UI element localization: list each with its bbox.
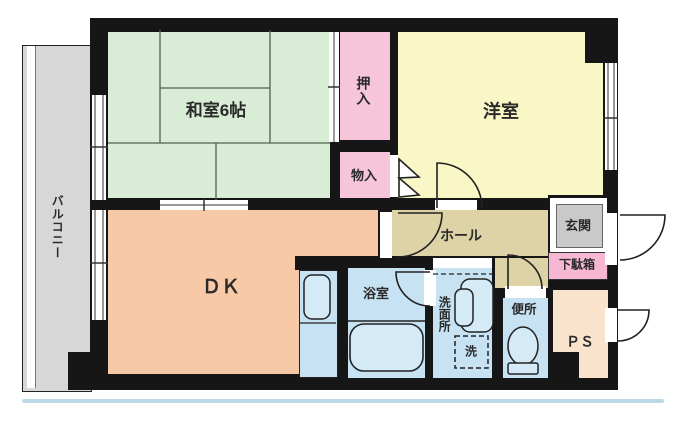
dk-hall-door [398, 213, 442, 257]
toilet-door [508, 255, 542, 289]
floor-plan: 和室6帖 押入 物入 洋室 ＤＫ ホール 玄関 下駄箱 浴室 洗面所 洗 便所 … [0, 0, 676, 422]
label-yoshitsu: 洋室 [483, 103, 519, 122]
front-door [620, 215, 665, 260]
bathtub [350, 324, 423, 371]
toilet-base [508, 363, 538, 374]
toilet-bowl [508, 327, 538, 365]
yoshitsu-door [437, 163, 482, 208]
baseline [22, 399, 664, 403]
label-washer: 洗 [465, 346, 477, 359]
bath-door [396, 272, 430, 306]
kitchen-sink [304, 275, 330, 319]
label-washitsu: 和室6帖 [186, 102, 246, 120]
label-getabako: 下駄箱 [559, 259, 595, 272]
plan-linework [0, 0, 676, 422]
label-senmenjo: 洗面所 [438, 296, 451, 332]
label-monoire: 物入 [351, 169, 377, 183]
washbasin-bowl [455, 289, 473, 326]
label-genkan: 玄関 [565, 219, 591, 233]
ps-door [618, 310, 649, 341]
label-dk: ＤＫ [202, 278, 240, 298]
label-hall: ホール [440, 229, 482, 244]
label-ps: ＰＳ [566, 335, 594, 350]
label-balcony: バルコニー [51, 195, 64, 260]
label-oshiire: 押入 [356, 76, 371, 106]
label-yokushitsu: 浴室 [363, 287, 389, 301]
label-benjo: 便所 [511, 303, 536, 316]
monoire-bifold-door [399, 159, 419, 197]
